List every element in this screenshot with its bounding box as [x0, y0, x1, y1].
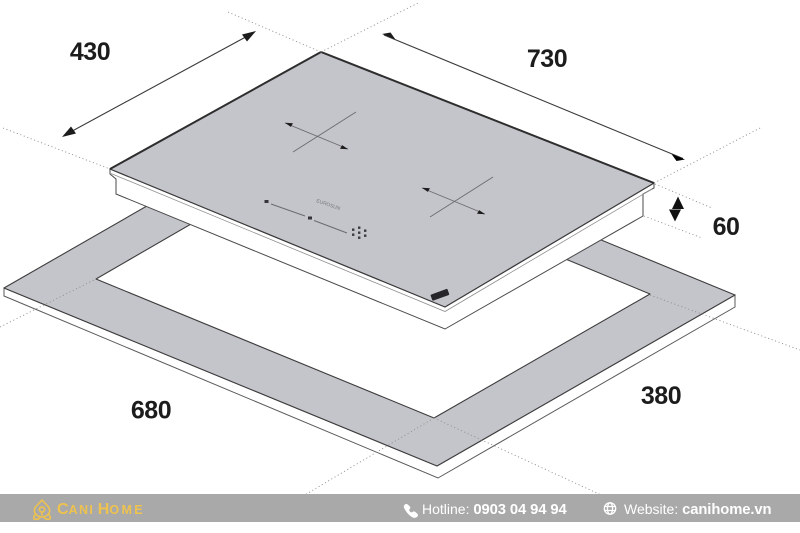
svg-text:Website: canihome.vn: Website: canihome.vn [624, 501, 772, 518]
svg-text:380: 380 [641, 382, 681, 410]
svg-text:60: 60 [713, 213, 740, 241]
svg-text:CANI HOME: CANI HOME [57, 501, 145, 518]
svg-text:680: 680 [131, 397, 171, 425]
svg-text:Hotline: 0903 04 94 94: Hotline: 0903 04 94 94 [422, 501, 568, 518]
svg-text:430: 430 [70, 38, 110, 66]
svg-text:730: 730 [527, 45, 567, 73]
